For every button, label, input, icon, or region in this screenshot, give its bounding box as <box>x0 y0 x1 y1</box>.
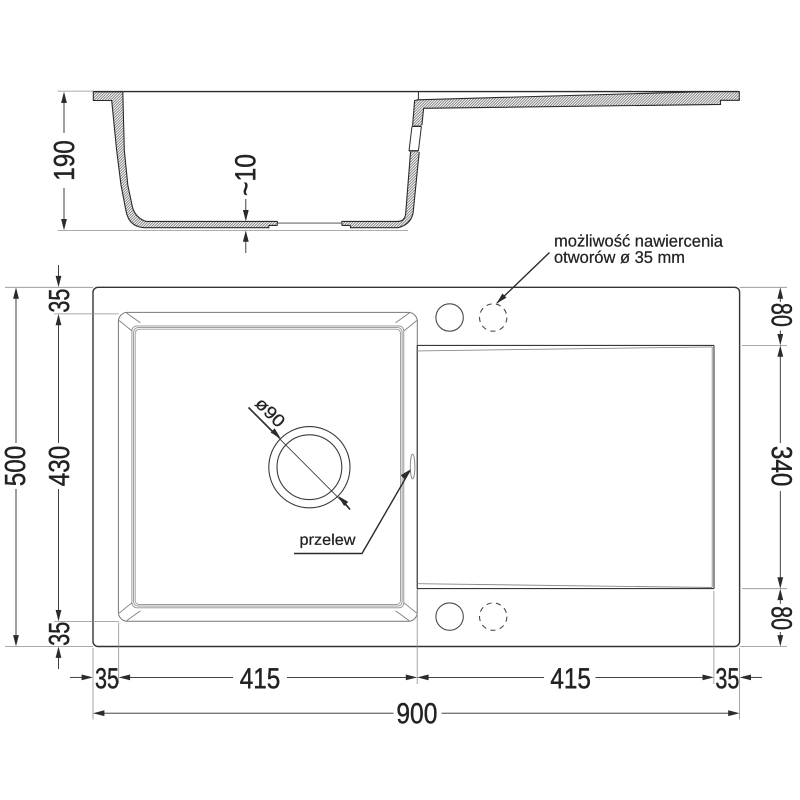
svg-text:415: 415 <box>240 663 281 695</box>
svg-text:35: 35 <box>95 663 119 695</box>
svg-text:przelew: przelew <box>299 532 356 549</box>
svg-text:190: 190 <box>49 140 81 181</box>
svg-text:430: 430 <box>44 446 76 487</box>
svg-text:35: 35 <box>44 622 76 646</box>
svg-text:35: 35 <box>44 289 76 313</box>
svg-text:35: 35 <box>715 663 739 695</box>
svg-text:340: 340 <box>765 446 797 487</box>
svg-text:900: 900 <box>396 698 437 730</box>
svg-text:otworów ø 35 mm: otworów ø 35 mm <box>554 248 685 267</box>
svg-text:500: 500 <box>0 446 32 487</box>
svg-text:415: 415 <box>550 663 591 695</box>
svg-text:80: 80 <box>765 606 797 630</box>
svg-text:~10: ~10 <box>230 154 262 196</box>
svg-text:80: 80 <box>765 303 797 327</box>
